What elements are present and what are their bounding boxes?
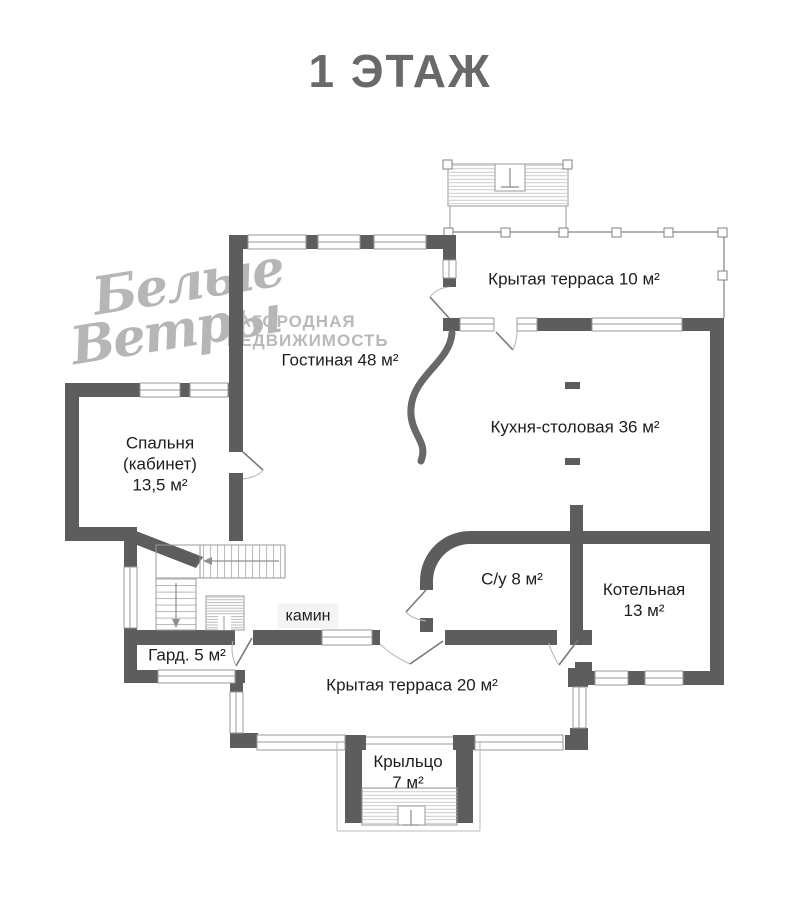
curved-partition-wall xyxy=(411,333,452,461)
floorplan-page: 1 ЭТАЖ Белые Ветры ЗАГОРОДНАЯ НЕДВИЖИМОС… xyxy=(0,0,800,900)
fireplace-block xyxy=(206,596,244,630)
room-label-kitchen: Кухня-столовая 36 м² xyxy=(490,417,659,438)
windows xyxy=(124,235,683,750)
room-label-boiler: Котельная 13 м² xyxy=(603,579,685,621)
room-label-porch: Крыльцо 7 м² xyxy=(373,751,442,793)
room-label-fireplace: камин xyxy=(277,604,338,629)
room-label-wardrobe: Гард. 5 м² xyxy=(148,645,226,666)
room-label-bedroom: Спальня (кабинет) 13,5 м² xyxy=(123,433,197,496)
room-label-living: Гостиная 48 м² xyxy=(281,350,398,371)
room-label-terrace-bottom: Крытая терраса 20 м² xyxy=(326,675,498,696)
entrance-steps-top xyxy=(443,160,572,232)
room-label-bathroom: С/у 8 м² xyxy=(481,569,543,590)
room-label-terrace-top: Крытая терраса 10 м² xyxy=(488,269,660,290)
